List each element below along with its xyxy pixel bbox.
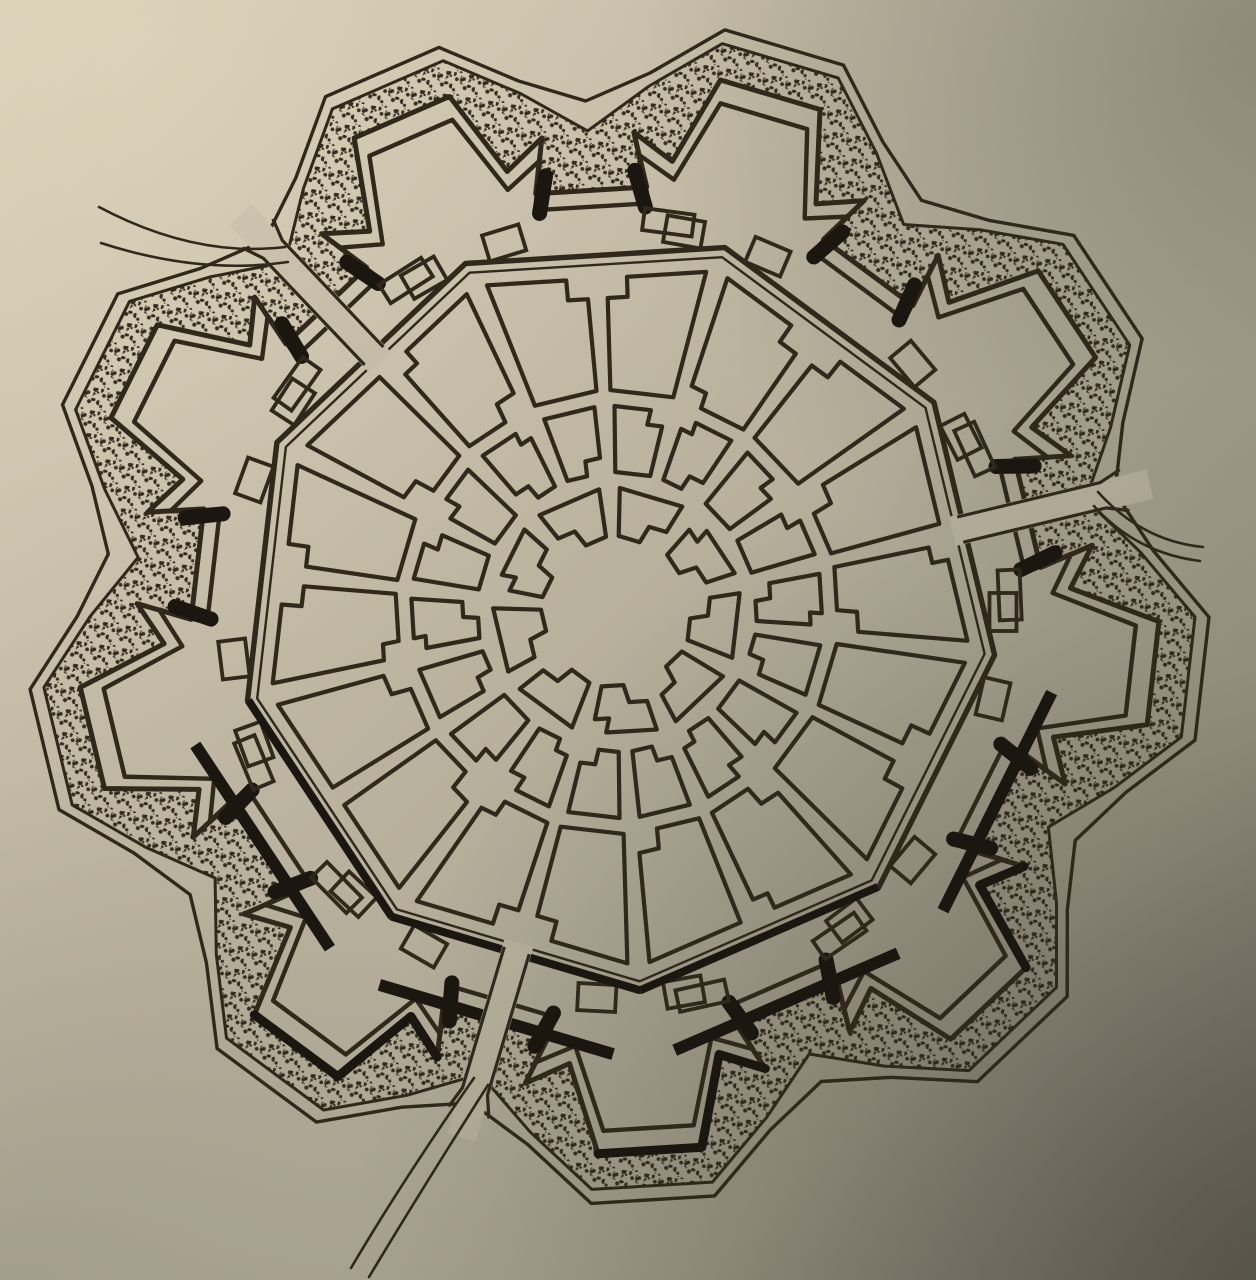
flank-shadow-blob [996,466,1034,467]
book-page-photo [0,0,1256,1280]
flank-shadow-blob [540,176,546,214]
paper-background [0,0,1256,1280]
flank-shadow-blob [185,514,223,518]
star-fortress-plan [0,0,1256,1280]
shadow-bottom-left [0,0,1256,1280]
flank-shadow-blob [635,170,646,207]
